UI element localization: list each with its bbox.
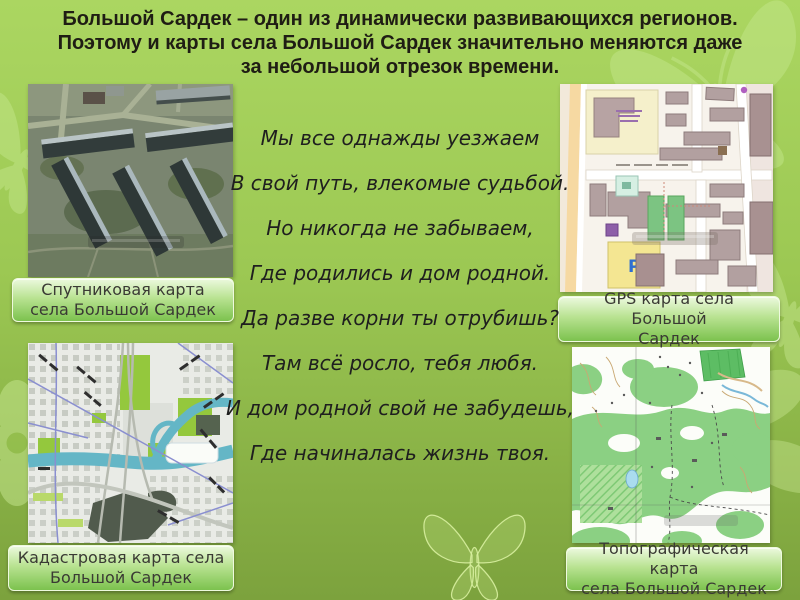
caption-line: GPS карта села Большой [604,289,734,328]
cadastral-map-caption: Кадастровая карта села Большой Сардек [8,545,234,591]
title-line: Большой Сардек – один из динамически раз… [0,7,800,31]
caption-line: села Большой Сардек [30,300,216,319]
caption-line: Топографическая карта [599,539,748,578]
poem-line: Но никогда не забываем, [200,206,600,251]
title-line: за небольшой отрезок времени. [0,55,800,79]
butterfly-outline-icon [412,490,537,600]
presentation-slide: Большой Сардек – один из динамически раз… [0,0,800,600]
poem-line: Где родились и дом родной. [200,251,600,296]
poem-line: В свой путь, влекомые судьбой. [200,161,600,206]
poem-line: Мы все однажды уезжаем [200,116,600,161]
poem-line: Там всё росло, тебя любя. [200,341,600,386]
caption-line: Большой Сардек [50,568,192,587]
topographic-map-image [572,347,770,543]
caption-line: села Большой Сардек [581,579,767,598]
caption-line: Спутниковая карта [41,280,204,299]
poem: Мы все однажды уезжаем В свой путь, влек… [200,116,600,476]
caption-line: Сардек [638,329,700,348]
poem-line: Где начиналась жизнь твоя. [200,431,600,476]
topographic-map-graphic [572,347,770,543]
slide-title: Большой Сардек – один из динамически раз… [0,7,800,79]
topographic-map-caption: Топографическая карта села Большой Сарде… [566,547,782,591]
poem-line: Да разве корни ты отрубишь? [200,296,600,341]
title-line: Поэтому и карты села Большой Сардек знач… [0,31,800,55]
poem-line: И дом родной свой не забудешь, [200,386,600,431]
caption-line: Кадастровая карта села [18,548,225,567]
